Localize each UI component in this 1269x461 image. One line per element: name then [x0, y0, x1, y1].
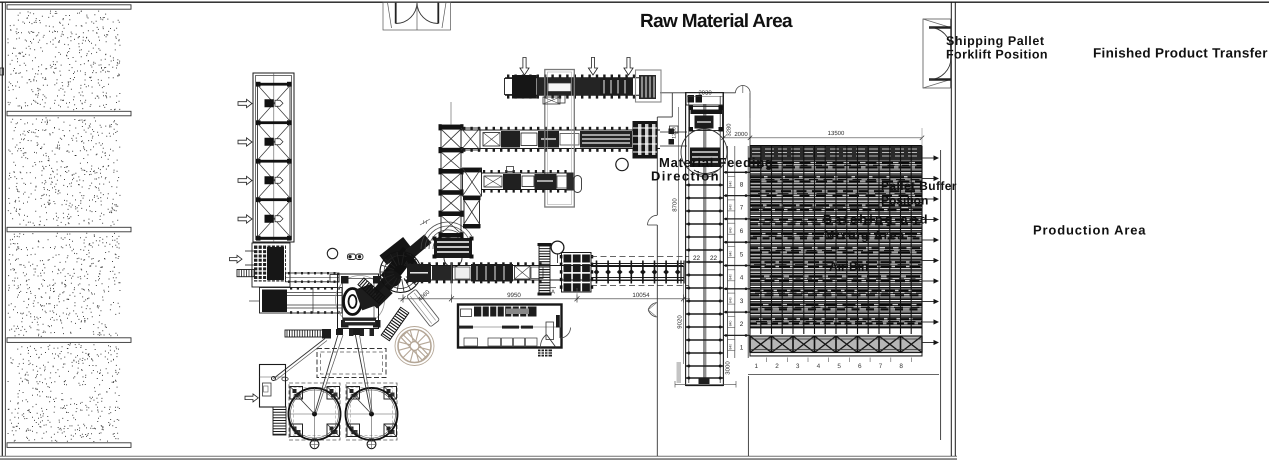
svg-text:Position: Position — [881, 194, 928, 208]
svg-text:8700: 8700 — [672, 198, 679, 212]
svg-text:840: 840 — [728, 251, 732, 257]
svg-text:10054: 10054 — [632, 292, 650, 299]
svg-text:3: 3 — [740, 298, 744, 305]
svg-text:13500: 13500 — [828, 130, 845, 137]
svg-text:Raw Material Area: Raw Material Area — [640, 11, 793, 32]
svg-text:8: 8 — [740, 181, 744, 188]
svg-text:9020: 9020 — [677, 315, 684, 329]
svg-text:2: 2 — [740, 321, 744, 328]
svg-text:Batching and: Batching and — [823, 213, 930, 227]
svg-text:2000: 2000 — [734, 131, 748, 138]
svg-text:A: A — [551, 290, 555, 296]
svg-text:Production Area: Production Area — [1033, 223, 1146, 238]
svg-text:2030: 2030 — [698, 90, 712, 97]
svg-text:840: 840 — [728, 204, 732, 210]
svg-text:1: 1 — [740, 345, 744, 352]
svg-text:Air Bin: Air Bin — [829, 260, 868, 274]
svg-text:Finished Product Transfer: Finished Product Transfer — [1093, 46, 1268, 61]
svg-text:3280: 3280 — [726, 124, 733, 137]
svg-text:22: 22 — [710, 255, 718, 262]
svg-text:840: 840 — [728, 320, 732, 326]
svg-text:Direction: Direction — [651, 169, 720, 184]
svg-text:Mixing Area: Mixing Area — [824, 229, 905, 243]
svg-text:840: 840 — [728, 181, 732, 187]
svg-text:2: 2 — [775, 363, 779, 370]
svg-text:840: 840 — [728, 344, 732, 350]
svg-text:5: 5 — [740, 251, 744, 258]
svg-text:5: 5 — [837, 363, 841, 370]
svg-text:840: 840 — [728, 297, 732, 303]
svg-text:3000: 3000 — [725, 361, 732, 375]
svg-text:7: 7 — [879, 363, 883, 370]
svg-text:6: 6 — [740, 228, 744, 235]
svg-text:9950: 9950 — [507, 292, 521, 299]
svg-text:1230: 1230 — [672, 127, 678, 139]
svg-text:1: 1 — [755, 363, 759, 370]
svg-text:22: 22 — [693, 255, 701, 262]
svg-text:4: 4 — [817, 363, 821, 370]
svg-text:Forklift Position: Forklift Position — [946, 48, 1048, 62]
svg-text:7: 7 — [740, 205, 744, 212]
svg-text:Pallet Buffer: Pallet Buffer — [881, 179, 957, 193]
svg-text:840: 840 — [728, 227, 732, 233]
svg-text:4: 4 — [740, 275, 744, 282]
svg-text:840: 840 — [728, 274, 732, 280]
svg-text:6: 6 — [858, 363, 862, 370]
svg-text:8: 8 — [899, 363, 903, 370]
svg-text:Shipping Pallet: Shipping Pallet — [946, 34, 1045, 48]
svg-text:3: 3 — [796, 363, 800, 370]
